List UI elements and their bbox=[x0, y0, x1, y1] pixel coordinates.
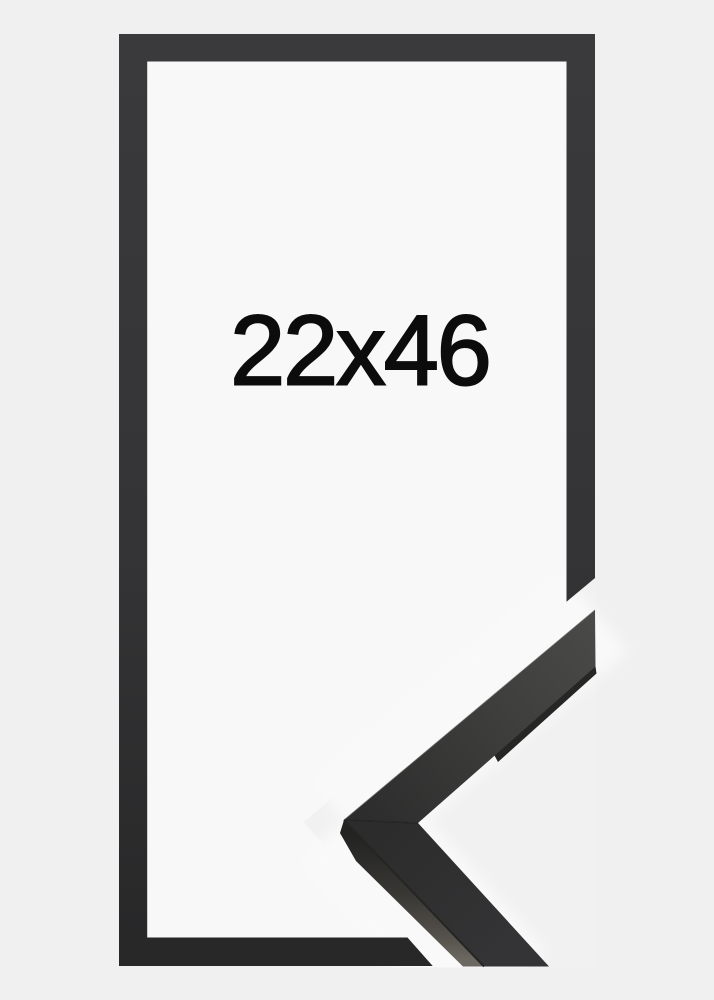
svg-text:22x46: 22x46 bbox=[230, 295, 490, 406]
